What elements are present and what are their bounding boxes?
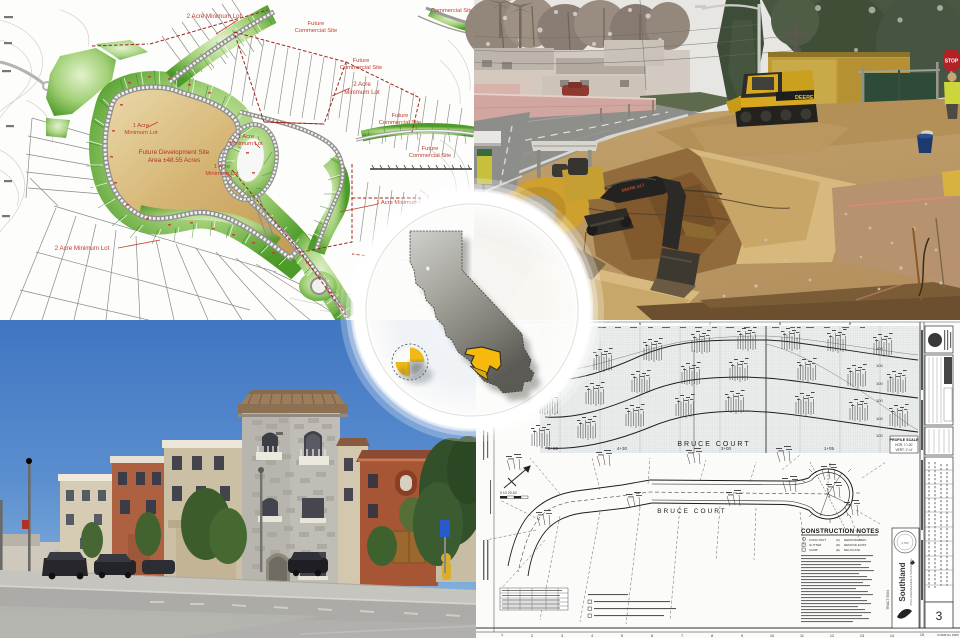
svg-text:VERT: 1"=4': VERT: 1"=4' [895,448,912,452]
svg-text:10: 10 [770,634,774,638]
svg-text:2: 2 [531,634,533,638]
svg-text:6: 6 [651,634,653,638]
svg-text:2 Acre: 2 Acre [353,81,371,88]
svg-text:Area ±48.55 Acres: Area ±48.55 Acres [148,157,201,164]
svg-text:Minimum Lot: Minimum Lot [205,171,239,177]
svg-text:100: 100 [876,363,883,368]
svg-text:100: 100 [876,416,883,421]
svg-text:Future: Future [392,113,409,119]
svg-text:100: 100 [876,433,883,438]
svg-text:1 Acre: 1 Acre [238,134,254,140]
svg-text:2 Acre Minimum Lot: 2 Acre Minimum Lot [187,13,242,20]
svg-text:12: 12 [830,634,834,638]
svg-text:9: 9 [741,634,743,638]
svg-text:15: 15 [920,633,924,637]
svg-text:100: 100 [876,346,883,351]
svg-text:2 Acre Minimum Lot: 2 Acre Minimum Lot [55,245,110,252]
svg-text:RELOCATE: RELOCATE [844,548,860,552]
svg-text:Minimum Lot: Minimum Lot [344,89,380,96]
svg-text:Commercial Site: Commercial Site [431,8,474,14]
svg-text:REMOVE&REPL: REMOVE&REPL [844,538,867,542]
svg-text:FORM No 1580: FORM No 1580 [937,633,958,637]
svg-text:Commercial Site: Commercial Site [340,65,383,71]
svg-text:0 10 20 40: 0 10 20 40 [500,491,517,495]
svg-text:BRUCE COURT: BRUCE COURT [677,441,750,448]
svg-text:3: 3 [936,609,943,623]
svg-text:CONSTRUCTION NOTES: CONSTRUCTION NOTES [801,528,879,535]
svg-text:TRACT 5654: TRACT 5654 [886,590,890,610]
svg-text:BRUCE COURT: BRUCE COURT [657,508,727,515]
svg-text:(C): (C) [836,538,840,542]
svg-text:13: 13 [860,634,864,638]
svg-text:100: 100 [876,398,883,403]
svg-text:4+30: 4+30 [617,446,628,451]
svg-text:Commercial Site: Commercial Site [409,153,452,159]
svg-text:A TRS: A TRS [901,542,909,545]
svg-text:0+20: 0+20 [548,446,559,451]
svg-text:Future: Future [308,21,325,27]
svg-text:7: 7 [681,634,683,638]
svg-text:Southland: Southland [898,562,907,601]
svg-text:STOP: STOP [945,59,959,65]
svg-text:1+05: 1+05 [824,446,835,451]
svg-text:5: 5 [621,634,623,638]
svg-text:11: 11 [800,634,804,638]
svg-text:8: 8 [711,634,713,638]
svg-text:GUTTER: GUTTER [809,543,822,547]
svg-text:CURB: CURB [809,548,818,552]
svg-text:3: 3 [561,634,563,638]
svg-text:14: 14 [890,634,894,638]
svg-text:(D): (D) [836,543,840,547]
svg-text:1 Acre: 1 Acre [133,123,149,129]
svg-text:CIVIL ENGINEERING & SURVEYING: CIVIL ENGINEERING & SURVEYING [909,558,913,605]
svg-text:4: 4 [591,634,593,638]
svg-text:Future: Future [422,146,439,152]
svg-text:3+00: 3+00 [721,446,732,451]
svg-text:(E): (E) [836,548,840,552]
svg-text:Commercial Site: Commercial Site [295,28,338,34]
svg-text:1: 1 [501,633,503,637]
svg-text:Future: Future [353,58,370,64]
svg-text:Future Development Site: Future Development Site [139,149,210,156]
svg-text:Minimum Lot: Minimum Lot [124,130,158,136]
svg-text:1 Acre: 1 Acre [214,164,230,170]
svg-text:DEERE: DEERE [795,95,814,101]
svg-text:PROFILE SCALE: PROFILE SCALE [890,438,919,442]
svg-text:100: 100 [876,381,883,386]
svg-text:HOR: 1"=20': HOR: 1"=20' [895,443,913,447]
svg-text:CONC PAVT: CONC PAVT [809,538,826,542]
svg-text:REMOVE EXIST: REMOVE EXIST [844,543,867,547]
svg-text:Commercial Site: Commercial Site [379,120,422,126]
svg-text:Minimum Lot: Minimum Lot [229,141,263,147]
